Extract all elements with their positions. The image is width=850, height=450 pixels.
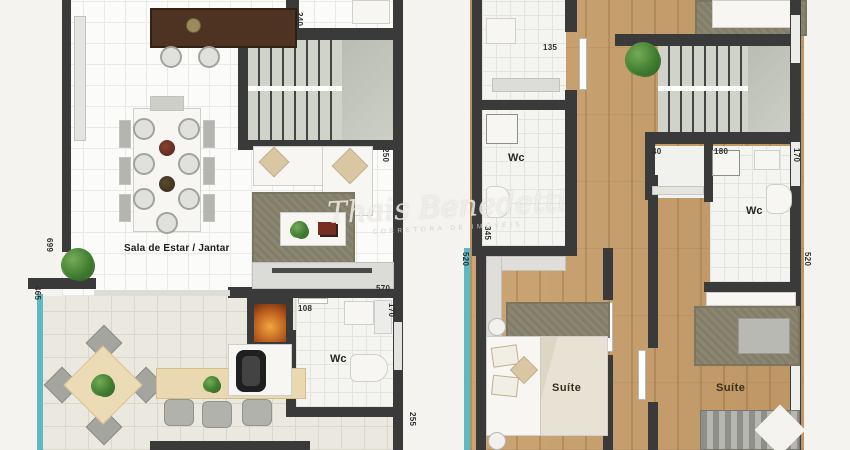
wall — [648, 402, 658, 450]
dim-699: 699 — [45, 238, 53, 252]
wc-label-upper: Wc — [508, 152, 525, 164]
coffee-table-books — [318, 222, 336, 235]
counter-plant — [204, 376, 220, 392]
wall — [603, 248, 613, 300]
wc-left-toilet — [486, 186, 510, 218]
suite-right-door-leaf — [638, 350, 646, 400]
wc-left-shower — [486, 114, 518, 144]
wall — [472, 0, 482, 250]
floor-plan-image: Sala de Estar / Jantar Wc 240 250 699 46… — [0, 0, 850, 450]
bar-stool — [198, 46, 220, 68]
coffee-table — [280, 212, 346, 246]
hall-plant — [626, 42, 660, 76]
fireplace-fire — [254, 304, 286, 342]
dim-170-left: 170 — [387, 303, 395, 317]
dim-240: 240 — [295, 12, 303, 26]
dim-135: 135 — [543, 44, 557, 52]
hall-door-leaf — [579, 38, 587, 90]
wall — [565, 0, 577, 32]
terrace-table-plant — [92, 374, 114, 396]
dining-chair — [178, 153, 200, 175]
wall — [476, 248, 486, 450]
dim-520-right: 520 — [803, 252, 811, 266]
dining-chair — [133, 188, 155, 210]
suite-left-label: Suíte — [552, 382, 581, 394]
dining-bench — [203, 120, 215, 148]
suite-left-pillow — [491, 375, 519, 398]
dining-chair — [178, 188, 200, 210]
dim-250: 250 — [381, 148, 389, 162]
kitchen-island — [150, 8, 297, 48]
counter-stool — [164, 399, 194, 426]
table-centerpiece — [159, 176, 175, 192]
suite-left-rug — [506, 302, 610, 338]
closet-shelf — [652, 186, 704, 195]
counter-stool — [242, 399, 272, 426]
window-niche — [352, 0, 390, 24]
balcony-glass-rail — [37, 294, 43, 450]
dining-bench — [119, 194, 131, 222]
dim-170-right: 170 — [792, 148, 800, 162]
staircase-divider-right — [658, 86, 748, 91]
threshold-sill — [94, 290, 230, 296]
tv — [272, 268, 372, 273]
coffee-table-plant — [291, 221, 308, 238]
wall — [472, 246, 576, 256]
wc-sink — [344, 301, 374, 325]
dining-chair-top — [150, 96, 184, 111]
dining-chair — [178, 118, 200, 140]
balcony-glass-rail-right — [464, 248, 470, 450]
wc-label-left-plan: Wc — [330, 353, 347, 365]
wall — [299, 28, 395, 40]
dim-255: 255 — [408, 412, 416, 426]
dining-bench — [203, 194, 215, 222]
wc-toilet — [350, 354, 388, 382]
suite-right-label: Suíte — [716, 382, 745, 394]
wall — [648, 175, 658, 348]
window-gap — [394, 322, 402, 370]
bath-top-sink — [486, 18, 516, 44]
dim-520-left: 520 — [461, 252, 469, 266]
tv-console — [252, 262, 394, 289]
dim-570: 570 — [376, 285, 390, 293]
wall — [150, 441, 310, 450]
dining-chair — [133, 118, 155, 140]
counter-stool — [202, 401, 232, 428]
wall — [62, 0, 71, 252]
wall — [286, 407, 403, 417]
dining-bench — [119, 157, 131, 185]
dining-chair — [133, 153, 155, 175]
bedroom-top-bed — [712, 0, 794, 28]
wall — [645, 132, 800, 144]
bath-top-vanity — [492, 78, 560, 92]
dim-180: 180 — [714, 148, 728, 156]
dim-465: 465 — [33, 286, 41, 300]
staircase-divider — [248, 86, 342, 91]
nightstand — [488, 432, 506, 450]
bar-stool — [160, 46, 182, 68]
nightstand — [488, 318, 506, 336]
sink-basin-inner — [242, 356, 260, 386]
suite-right-ottoman — [738, 318, 790, 354]
wall — [704, 282, 800, 292]
corner-plant — [62, 248, 94, 280]
wall — [238, 40, 248, 150]
dining-bench — [119, 120, 131, 148]
wall — [565, 90, 577, 256]
bath-mid-sink — [754, 150, 780, 170]
wall — [472, 100, 576, 110]
bath-mid-toilet — [766, 184, 792, 214]
window-gap — [791, 15, 800, 63]
wall — [393, 0, 403, 450]
wc-label-middle: Wc — [746, 205, 763, 217]
dining-chair — [156, 212, 178, 234]
suite-right-console — [706, 292, 796, 306]
dim-108: 108 — [298, 305, 312, 313]
sideboard — [74, 16, 86, 141]
dim-345: 345 — [483, 226, 491, 240]
dining-bench — [203, 157, 215, 185]
staircase-landing — [342, 40, 393, 140]
living-dining-label: Sala de Estar / Jantar — [124, 243, 230, 254]
staircase-landing-right — [748, 46, 796, 132]
table-centerpiece — [159, 140, 175, 156]
dim-40: 40 — [652, 148, 662, 156]
kitchen-sink-knob — [186, 18, 201, 33]
